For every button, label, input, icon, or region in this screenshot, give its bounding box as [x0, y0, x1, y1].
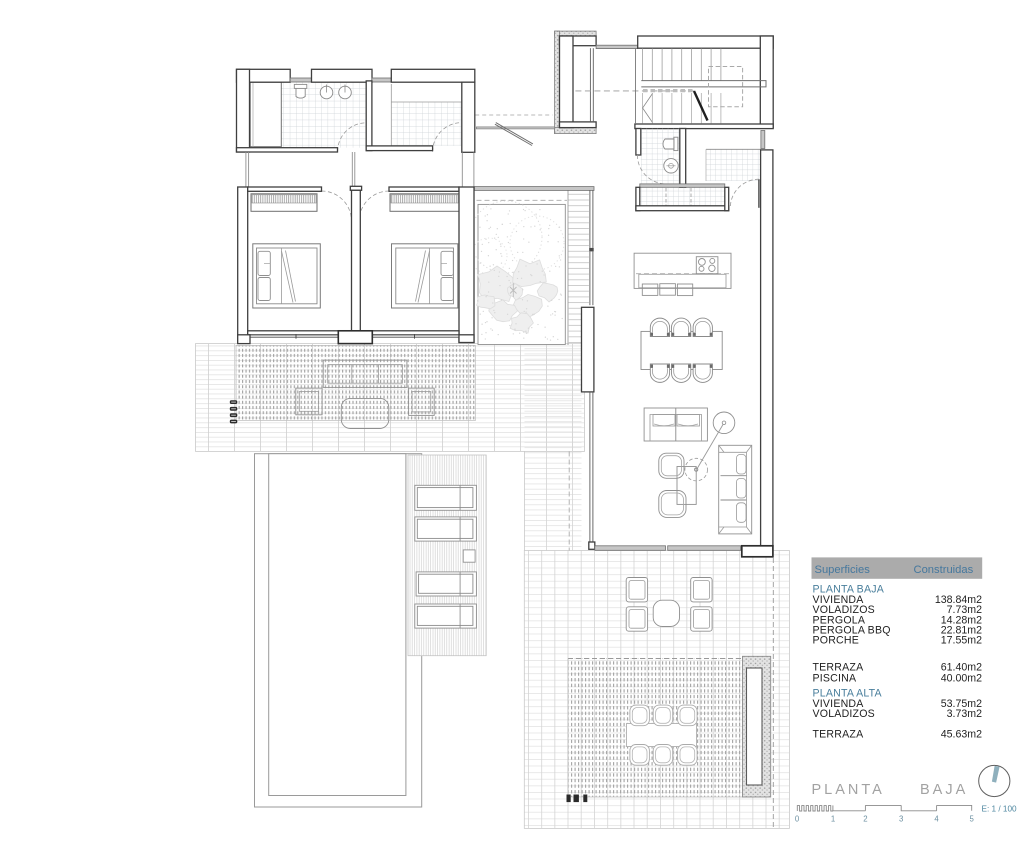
svg-text:2: 2	[863, 815, 867, 824]
svg-text:5: 5	[970, 815, 975, 824]
svg-text:3: 3	[899, 815, 903, 824]
svg-text:1: 1	[831, 815, 835, 824]
svg-text:45.63m2: 45.63m2	[941, 729, 982, 741]
svg-text:3.73m2: 3.73m2	[947, 708, 982, 720]
svg-text:VOLADIZOS: VOLADIZOS	[813, 708, 875, 720]
svg-text:4: 4	[934, 815, 939, 824]
svg-text:PORCHE: PORCHE	[813, 635, 860, 647]
svg-text:PLANTA BAJA: PLANTA BAJA	[812, 782, 969, 798]
svg-text:E: 1 / 100: E: 1 / 100	[982, 805, 1017, 814]
svg-text:PISCINA: PISCINA	[813, 673, 858, 685]
svg-text:TERRAZA: TERRAZA	[813, 729, 865, 741]
svg-text:17.55m2: 17.55m2	[941, 635, 982, 647]
svg-text:Superficies: Superficies	[815, 564, 871, 576]
svg-text:0: 0	[795, 815, 800, 824]
svg-text:Construidas: Construidas	[914, 564, 974, 576]
svg-text:40.00m2: 40.00m2	[941, 673, 982, 685]
